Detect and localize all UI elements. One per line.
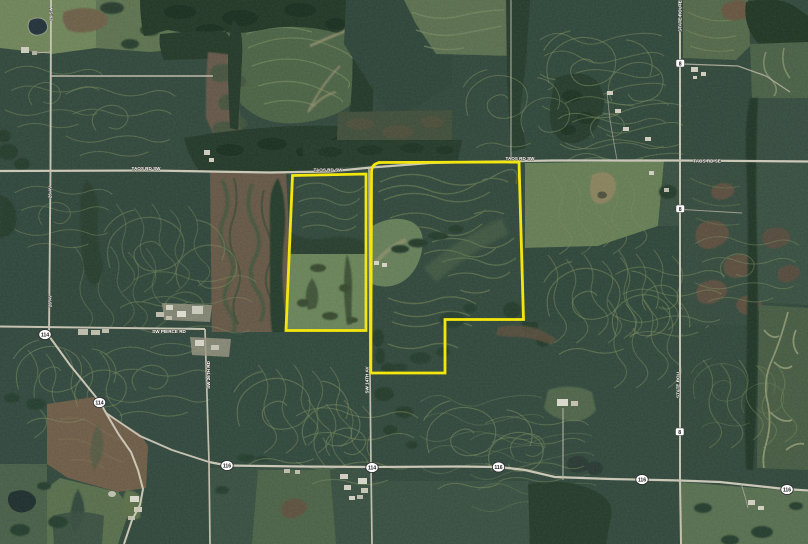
svg-text:26 AV: 26 AV bbox=[48, 185, 53, 198]
svg-text:SW 14TH AV: SW 14TH AV bbox=[365, 366, 370, 394]
svg-text:TAOS RD SW: TAOS RD SW bbox=[131, 166, 161, 171]
svg-text:114: 114 bbox=[368, 465, 376, 471]
svg-text:TAOS RD SE: TAOS RD SE bbox=[693, 158, 721, 163]
svg-text:STATE ROUTE: STATE ROUTE bbox=[678, 0, 683, 32]
svg-text:116: 116 bbox=[638, 477, 646, 483]
svg-text:SW 26TH RD: SW 26TH RD bbox=[206, 360, 211, 389]
svg-text:116: 116 bbox=[783, 487, 791, 493]
svg-text:26 AV: 26 AV bbox=[48, 294, 53, 307]
svg-text:8: 8 bbox=[679, 62, 682, 68]
svg-text:116: 116 bbox=[223, 463, 231, 469]
svg-text:8: 8 bbox=[678, 430, 681, 436]
svg-text:8: 8 bbox=[679, 207, 682, 213]
svg-text:SW PIERCE RD: SW PIERCE RD bbox=[152, 329, 186, 334]
svg-text:26 SW: 26 SW bbox=[49, 6, 54, 20]
svg-text:116: 116 bbox=[494, 465, 502, 471]
svg-text:TAOS RD SW: TAOS RD SW bbox=[505, 156, 535, 161]
svg-text:114: 114 bbox=[95, 400, 103, 406]
svg-text:STATE ROU: STATE ROU bbox=[676, 371, 681, 398]
svg-text:TAOS RD SW: TAOS RD SW bbox=[313, 167, 343, 172]
svg-text:114: 114 bbox=[41, 332, 49, 338]
